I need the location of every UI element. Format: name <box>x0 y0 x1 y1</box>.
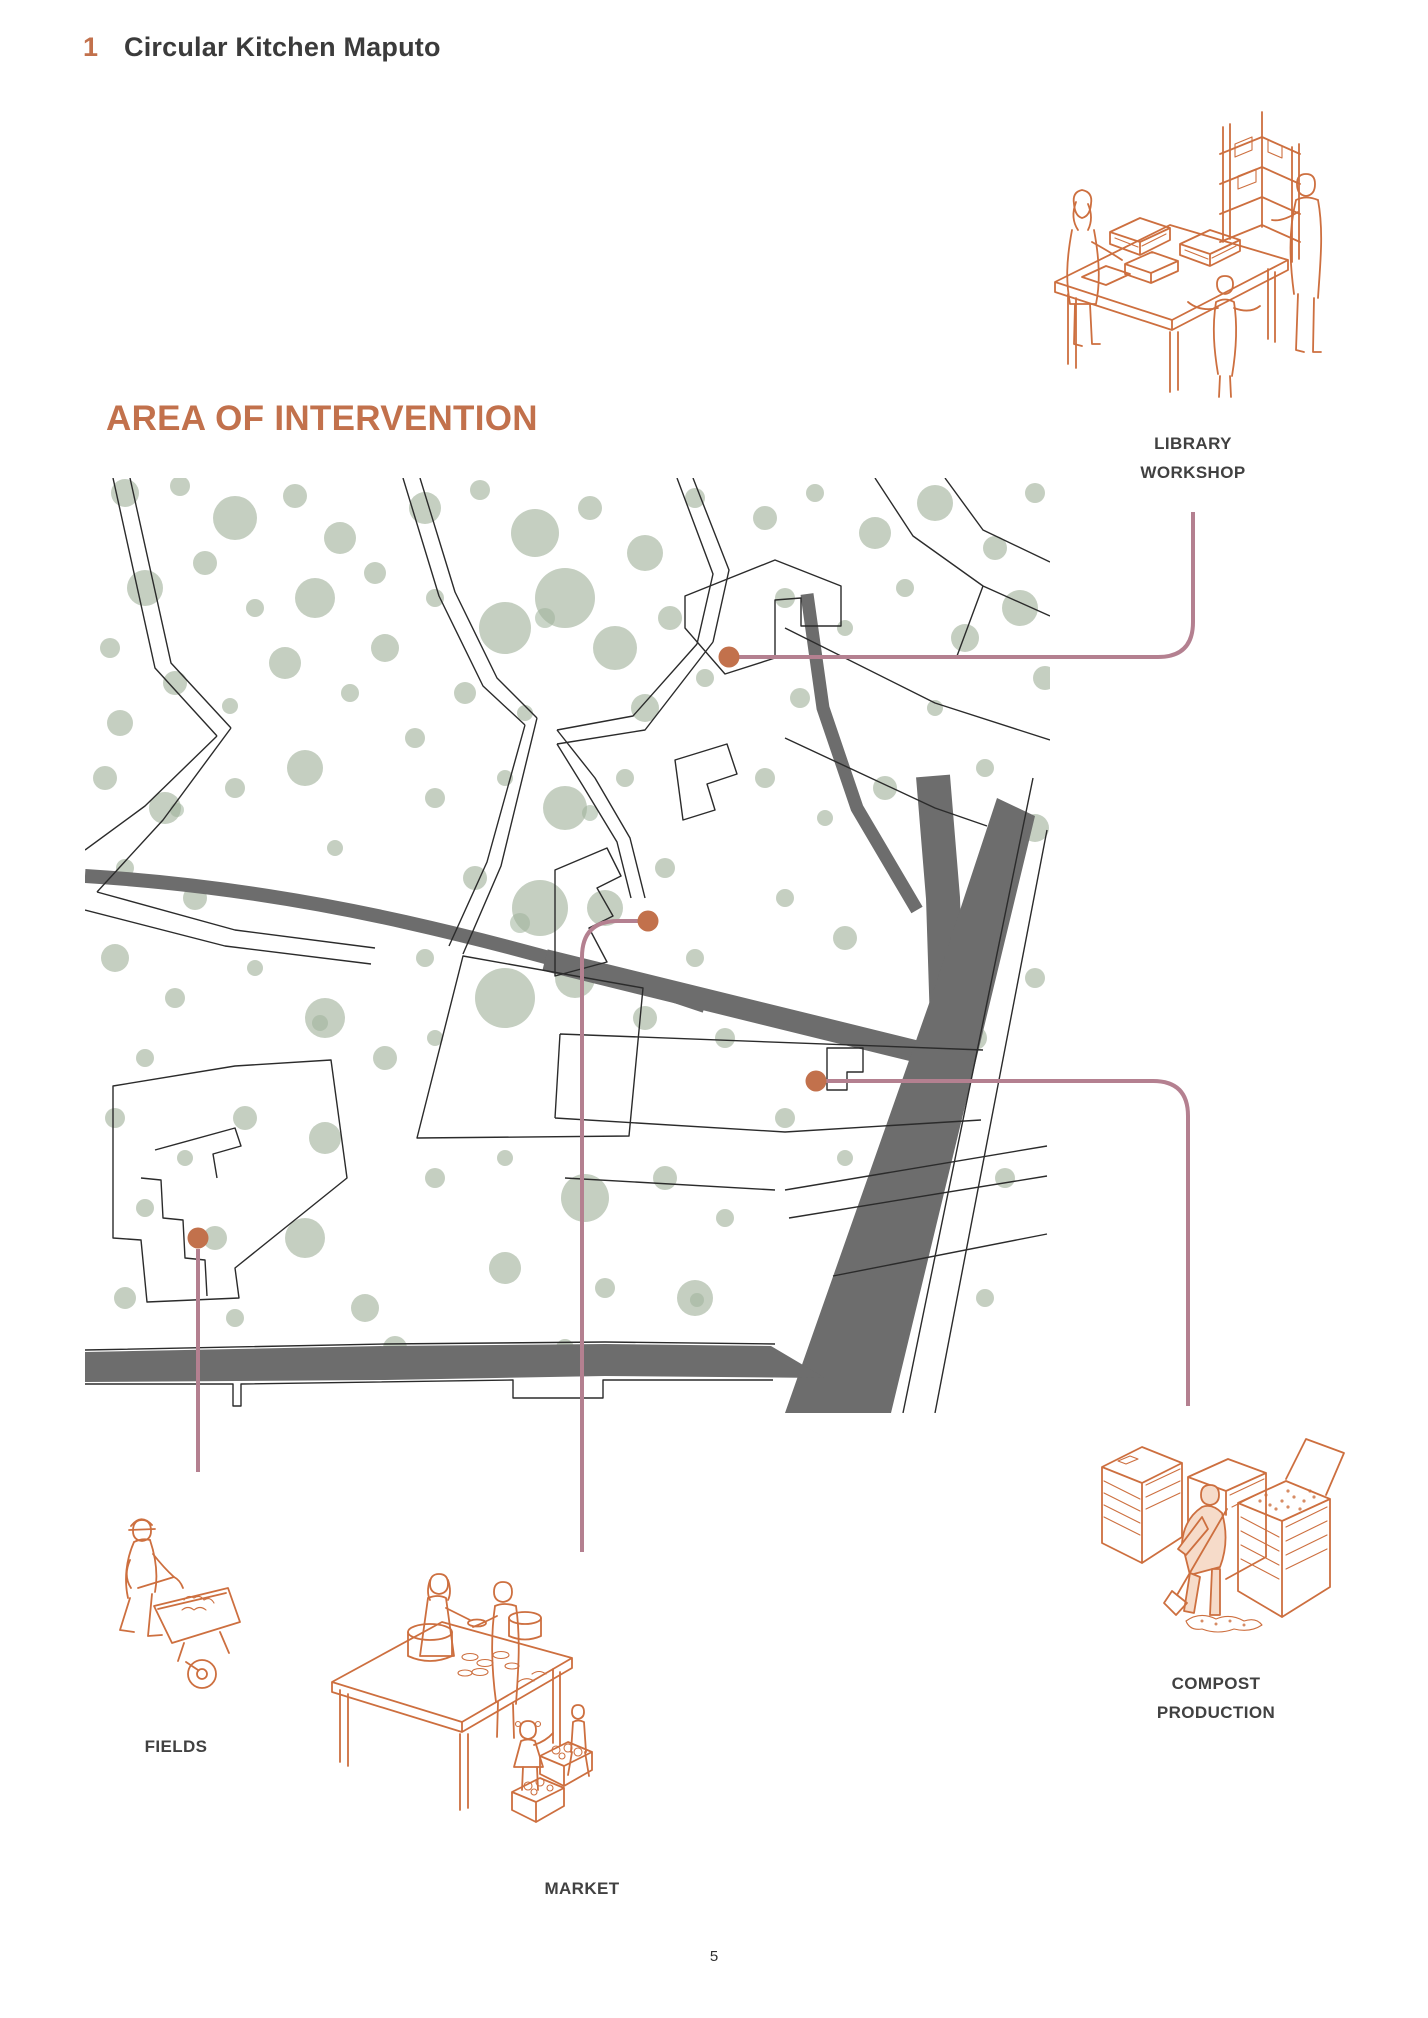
library-connector <box>719 512 1194 668</box>
library-label-line1: LIBRARY <box>1063 429 1323 458</box>
library-connector-dot <box>719 647 740 668</box>
compost-production-illustration <box>1090 1425 1355 1665</box>
market-connector-line <box>582 921 638 1552</box>
fields-connector-dot <box>188 1228 209 1249</box>
compost-production-label: COMPOST PRODUCTION <box>1096 1669 1336 1727</box>
market-connector <box>582 911 659 1553</box>
page-number: 5 <box>684 1948 744 1965</box>
fields-illustration <box>88 1498 268 1733</box>
compost-label-line2: PRODUCTION <box>1096 1698 1336 1727</box>
library-workshop-illustration <box>1020 92 1340 402</box>
compost-connector-line <box>826 1081 1188 1406</box>
market-connector-dot <box>638 911 659 932</box>
compost-connector-dot <box>806 1071 827 1092</box>
compost-connector <box>806 1071 1189 1407</box>
library-connector-line <box>739 512 1193 657</box>
fields-connector <box>188 1228 209 1473</box>
fields-label: FIELDS <box>96 1732 256 1761</box>
market-label: MARKET <box>482 1874 682 1903</box>
market-illustration <box>320 1560 600 1840</box>
library-workshop-label: LIBRARY WORKSHOP <box>1063 429 1323 487</box>
document-page: { "header": { "number": "1", "title": "C… <box>0 0 1428 2018</box>
library-label-line2: WORKSHOP <box>1063 458 1323 487</box>
compost-label-line1: COMPOST <box>1096 1669 1336 1698</box>
